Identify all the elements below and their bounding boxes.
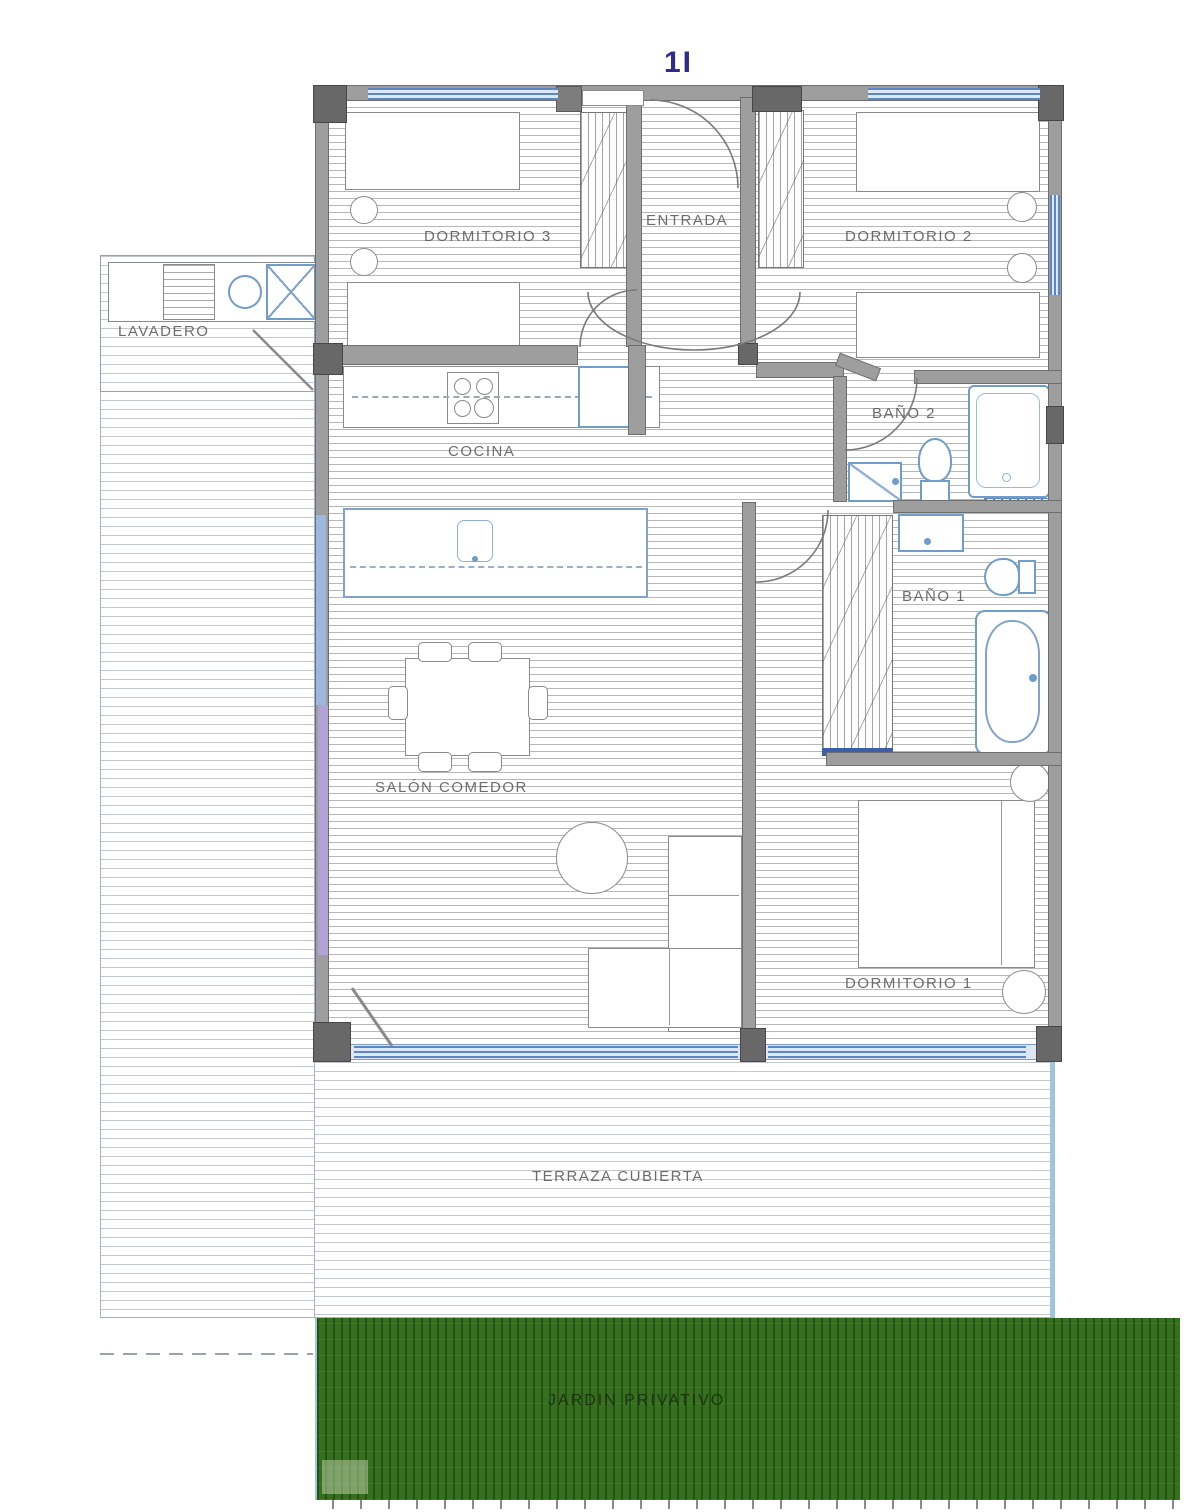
pillar-right-mid — [1046, 406, 1064, 444]
wardrobe-dorm2 — [758, 110, 804, 268]
chair — [468, 642, 502, 662]
unit-label: 1I — [664, 46, 693, 80]
island-dashed-line — [350, 566, 642, 568]
garden-label: JARDIN PRIVATIVO — [548, 1392, 725, 1410]
hall-wardrobe — [822, 515, 893, 752]
wall-cocina-stub — [628, 345, 646, 435]
pillar-top-right — [1038, 85, 1064, 121]
bed-dorm1 — [858, 800, 1035, 968]
nightstand-dorm2-a — [1007, 192, 1037, 222]
dorm2-label: DORMITORIO 2 — [845, 228, 973, 245]
wall-dorm1-top — [826, 752, 1062, 766]
round-table — [556, 822, 628, 894]
bath2-shower — [968, 385, 1050, 498]
laundry-sink-round — [228, 275, 262, 309]
bath1-toilet-bowl — [984, 558, 1020, 596]
bath2-toilet-bowl — [918, 438, 952, 482]
dining-table — [405, 658, 530, 756]
private-garden — [315, 1318, 1180, 1500]
wall-dorm3-entrada — [626, 97, 642, 347]
pillar-hall-bottom — [738, 343, 758, 365]
nightstand-dorm3-b — [350, 248, 378, 276]
entry-sill — [582, 90, 644, 106]
chair — [528, 686, 548, 720]
bed-dorm2 — [856, 112, 1040, 192]
bath2-sink-faucet — [892, 478, 899, 485]
pillar-bottom-left — [313, 1022, 351, 1062]
nightstand-dorm2-b — [1007, 253, 1037, 283]
chair — [468, 752, 502, 772]
bath1-bathtub — [975, 610, 1052, 755]
chair — [418, 752, 452, 772]
window-right-wall — [1050, 195, 1060, 295]
pillar-bottom-right — [1036, 1026, 1062, 1062]
window-salon-terrace — [354, 1046, 738, 1058]
chair — [418, 642, 452, 662]
chair — [388, 686, 408, 720]
window-dorm1-terrace — [768, 1046, 1026, 1058]
nightstand-dorm1-b — [1002, 970, 1046, 1014]
wall-entrada-dorm2 — [740, 97, 756, 363]
entry-jamb-left — [556, 86, 582, 112]
entry-jamb-right — [752, 86, 802, 112]
cooktop — [447, 372, 499, 424]
garden-fence-ticks — [332, 1500, 1180, 1509]
kitchen-island — [343, 508, 648, 598]
sofa-horizontal — [588, 948, 742, 1028]
terrace-bottom-area — [315, 1062, 1055, 1318]
terrace-right-edge — [1050, 1062, 1053, 1318]
floor-plan: 1I JARDIN PRIVATIVO LAVADERO DORMITORIO … — [0, 0, 1200, 1512]
washing-machine — [163, 264, 215, 320]
salon-label: SALÓN COMEDOR — [375, 779, 528, 796]
pillar-top-left — [313, 85, 347, 123]
bath1-sink-faucet — [924, 538, 931, 545]
wall-dorm2-bottom-right — [914, 370, 1062, 384]
cocina-label: COCINA — [448, 443, 515, 460]
wall-corridor — [742, 502, 756, 1060]
bath2-label: BAÑO 2 — [872, 405, 936, 422]
dorm1-label: DORMITORIO 1 — [845, 975, 973, 992]
pillar-left-mid — [313, 343, 343, 375]
wall-dorm3-cocina — [315, 345, 578, 365]
dorm3-label: DORMITORIO 3 — [424, 228, 552, 245]
laundry-basin-x — [266, 264, 316, 320]
nightstand-dorm3-a — [350, 196, 378, 224]
laundry-label: LAVADERO — [118, 323, 209, 340]
terrace-label: TERRAZA CUBIERTA — [532, 1168, 704, 1185]
island-sink-drain — [472, 556, 478, 562]
terrace-left-area — [100, 255, 315, 1318]
wall-bath2-bath1 — [893, 500, 1062, 513]
left-wall-glazing-b — [318, 705, 328, 955]
kitchen-cabinet-fridge — [578, 366, 632, 428]
entrada-label: ENTRADA — [646, 212, 728, 229]
bath1-sink — [898, 514, 964, 552]
wall-dorm2-bottom-left — [756, 362, 844, 378]
bath1-toilet-tank — [1018, 560, 1036, 594]
left-wall-glazing-a — [316, 515, 326, 705]
bed-dorm3-a — [345, 112, 520, 190]
pillar-bottom-mid — [740, 1028, 766, 1062]
wardrobe-dorm3 — [580, 112, 630, 268]
bath1-label: BAÑO 1 — [902, 588, 966, 605]
furniture-dorm2 — [856, 292, 1040, 358]
window-dorm2 — [868, 88, 1040, 100]
window-dorm3 — [368, 88, 558, 100]
garden-watermark — [322, 1460, 368, 1494]
nightstand-dorm1-a — [1010, 762, 1050, 802]
wall-bath2-left — [833, 376, 847, 502]
